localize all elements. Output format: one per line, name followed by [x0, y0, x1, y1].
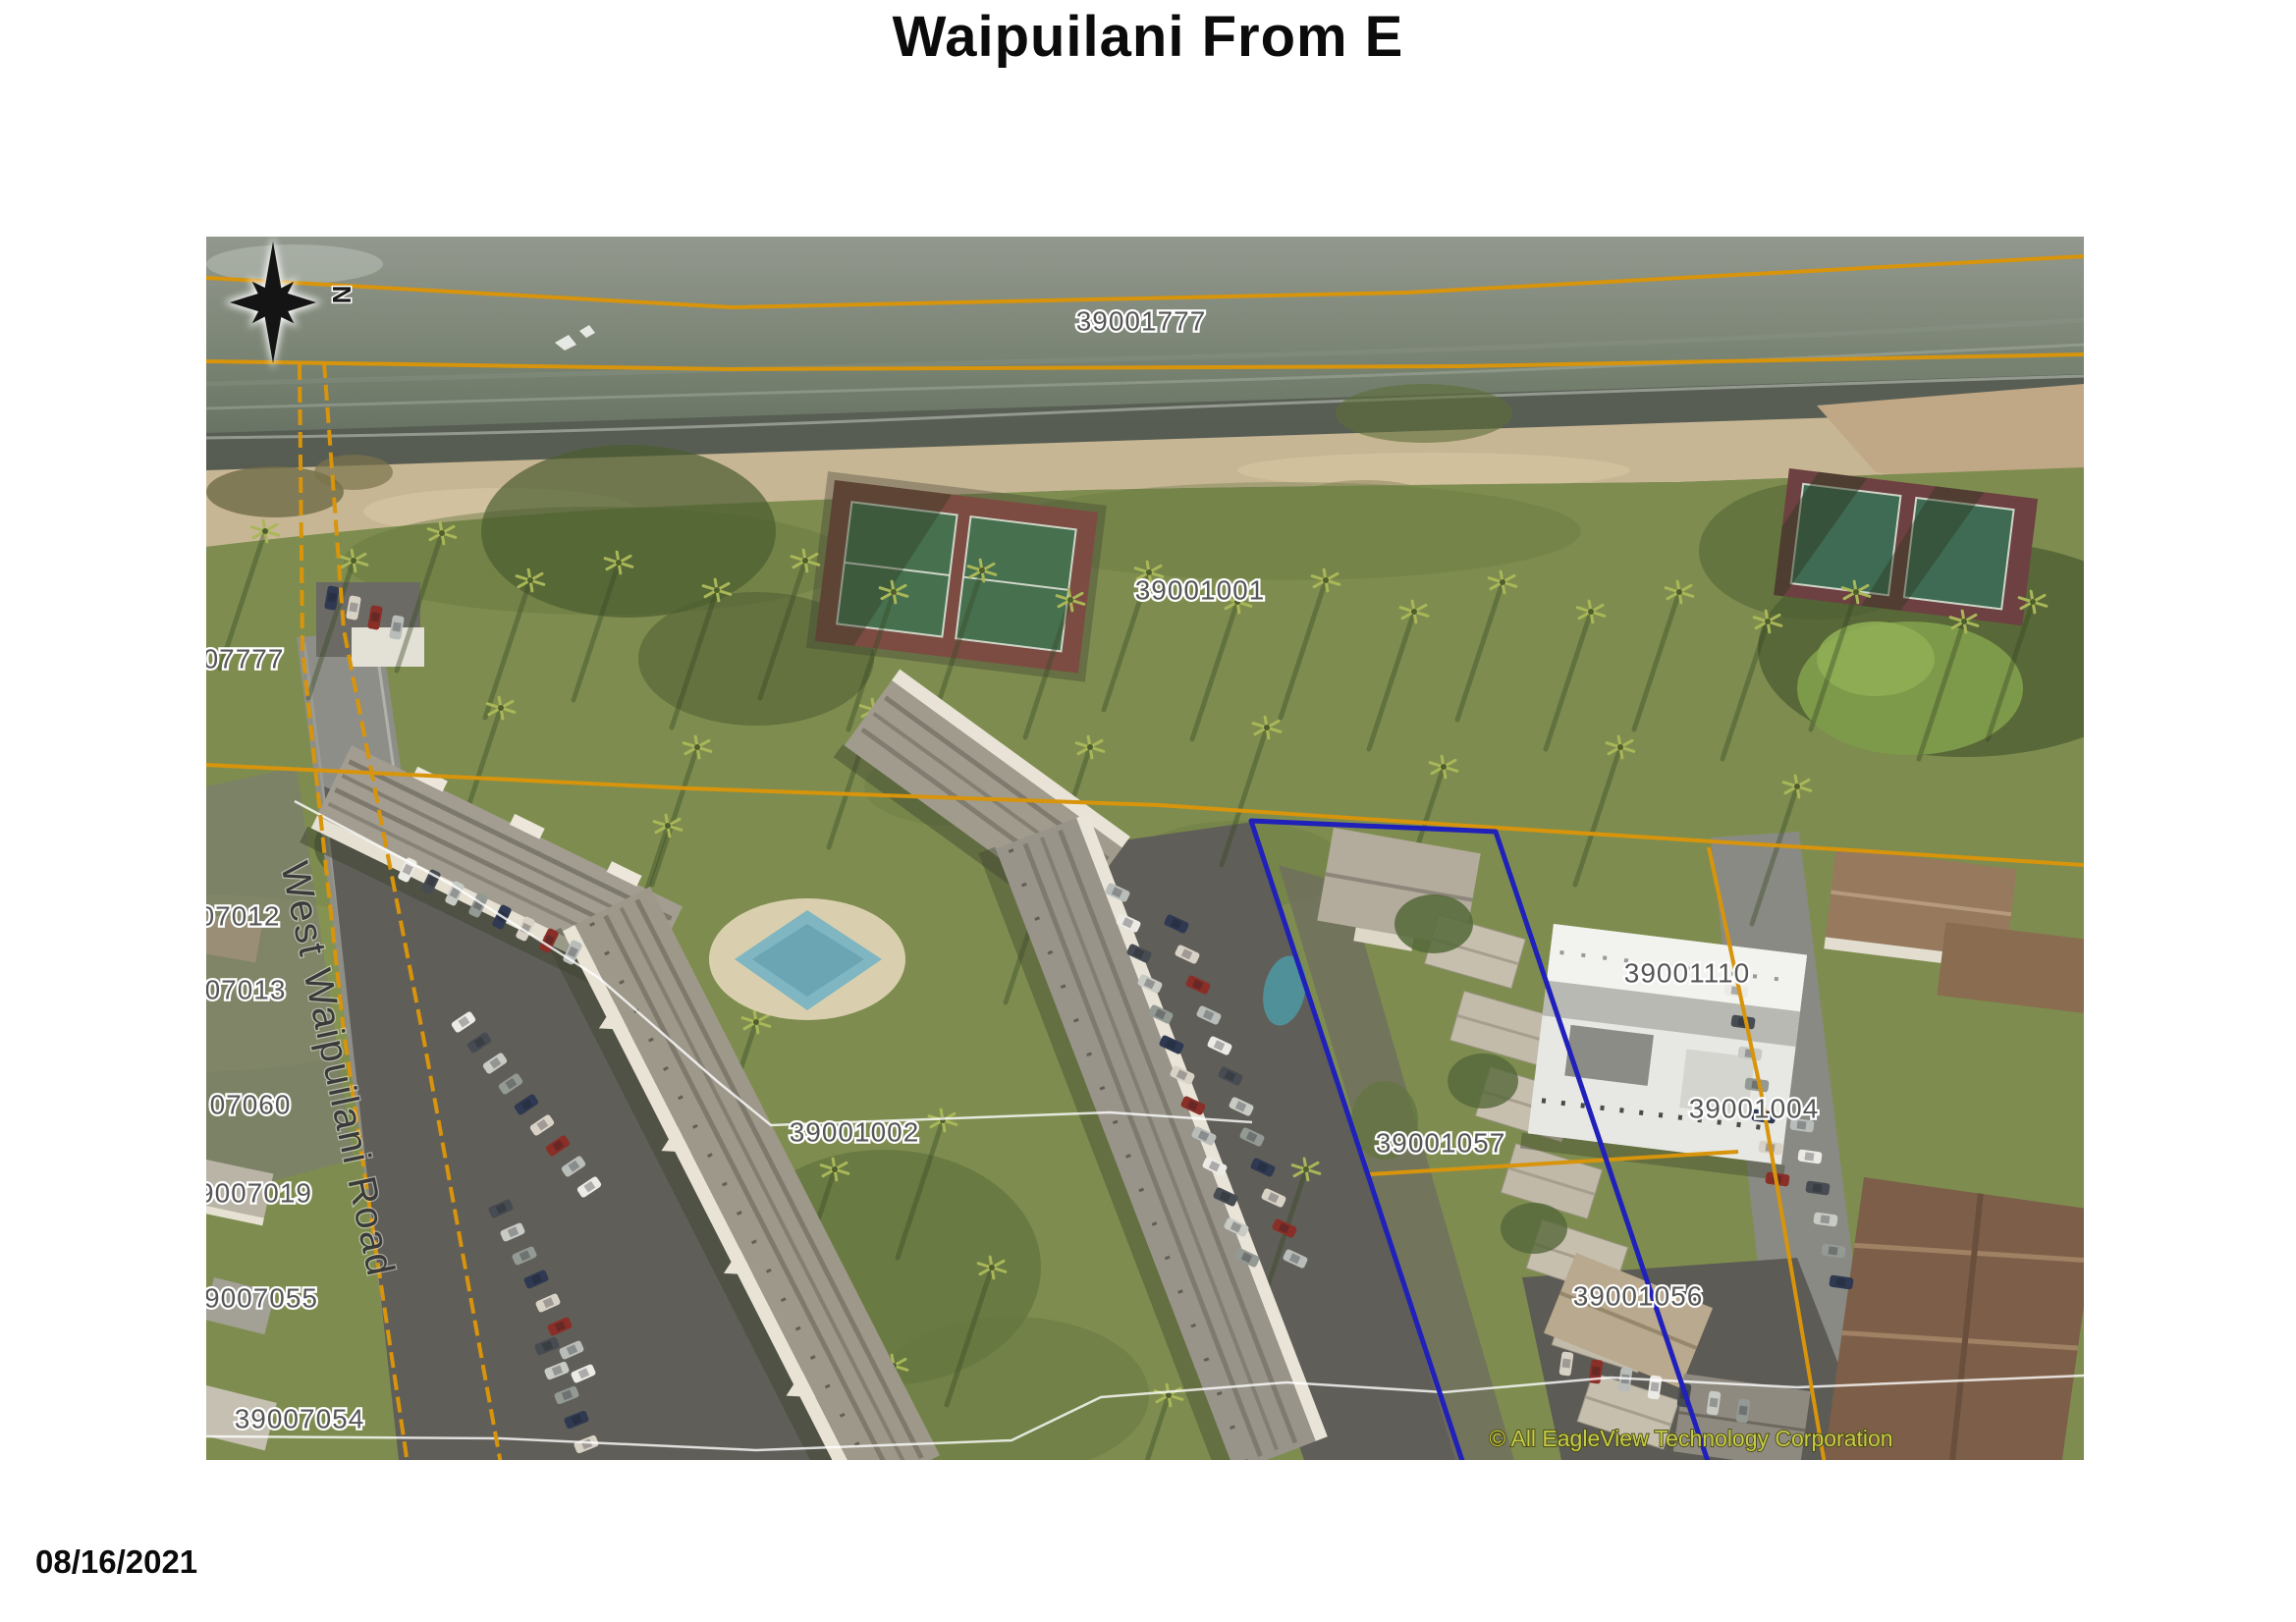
- report-date: 08/16/2021: [35, 1543, 197, 1581]
- parcel-label: 39001056: [1573, 1280, 1704, 1311]
- aerial-photo: N 39001777 39001001 07777 07012 07013 07…: [206, 237, 2084, 1460]
- parcel-label: 9007019: [206, 1177, 312, 1208]
- parcel-label: 39001004: [1689, 1093, 1820, 1123]
- parcel-label: 07060: [210, 1089, 292, 1119]
- parcel-label: 39001110: [1624, 957, 1750, 988]
- parcel-label: 39001057: [1376, 1127, 1506, 1158]
- copyright-label: © All EagleView Technology Corporation: [1489, 1426, 1892, 1451]
- aerial-map-image: N 39001777 39001001 07777 07012 07013 07…: [206, 237, 2084, 1460]
- parcel-label: 39001777: [1076, 305, 1207, 336]
- parcel-label: 39001001: [1135, 574, 1266, 605]
- parcel-label: 9007055: [206, 1282, 318, 1313]
- parcel-label: 39001002: [790, 1116, 920, 1147]
- page-title: Waipuilani From E: [0, 4, 2296, 70]
- parcel-label: 07013: [206, 974, 286, 1004]
- north-label: N: [327, 286, 356, 304]
- parcel-label: 07012: [206, 900, 280, 931]
- parcel-label: 07777: [206, 643, 284, 674]
- report-page: Waipuilani From E: [0, 0, 2296, 1622]
- parcel-label: 39007054: [235, 1403, 365, 1433]
